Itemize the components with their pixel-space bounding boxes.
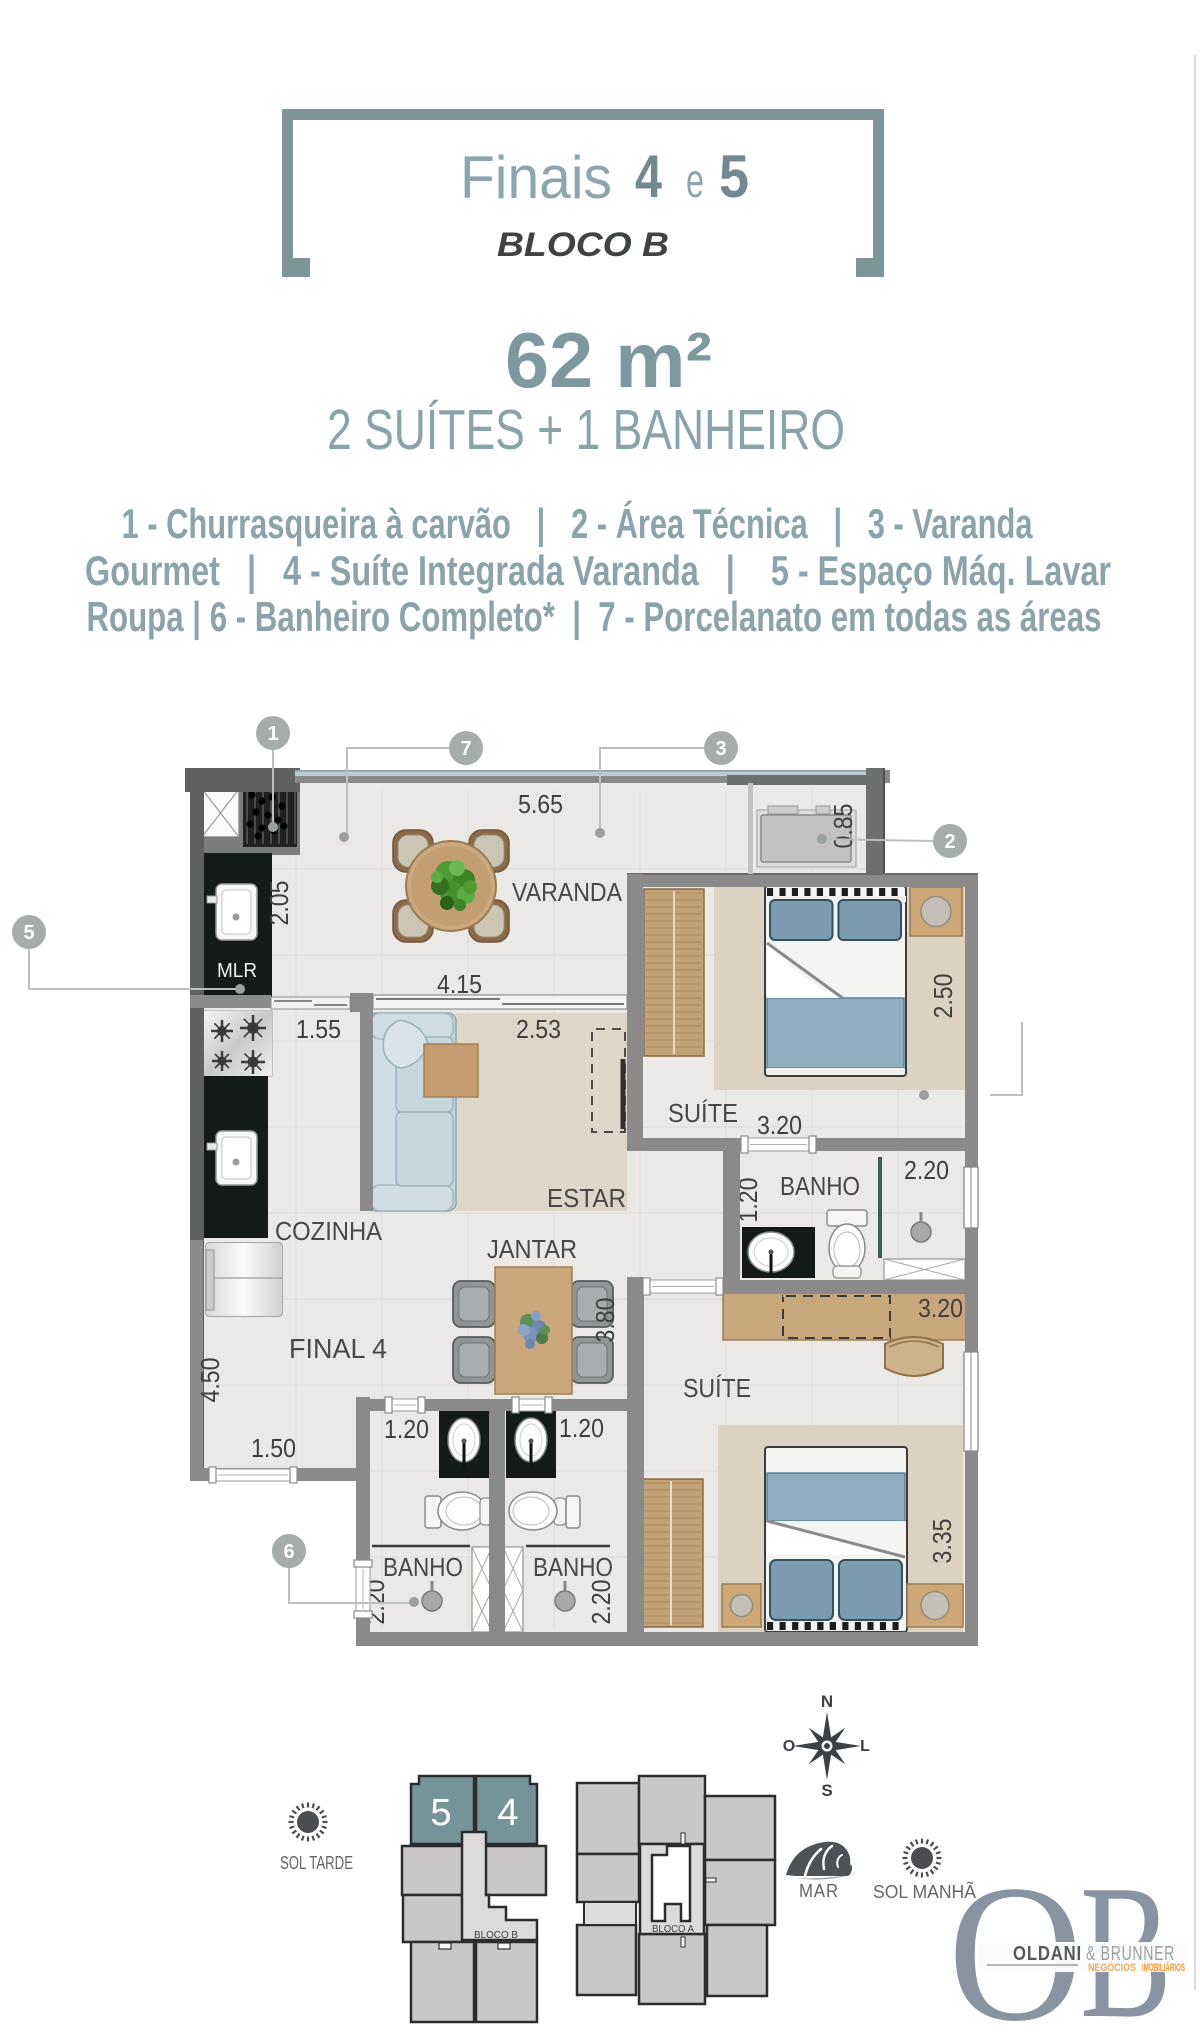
svg-text:FINAL 4: FINAL 4 <box>289 1333 387 1364</box>
svg-text:SUÍTE: SUÍTE <box>683 1373 751 1403</box>
svg-text:BLOCO A: BLOCO A <box>652 1924 694 1935</box>
svg-text:0.85: 0.85 <box>828 804 858 849</box>
svg-text:2: 2 <box>944 831 955 853</box>
svg-text:BANHO: BANHO <box>383 1552 463 1582</box>
svg-text:O: O <box>948 1845 1083 2029</box>
svg-text:4.50: 4.50 <box>195 1358 225 1403</box>
svg-text:2.20: 2.20 <box>904 1155 949 1185</box>
svg-text:SOL TARDE: SOL TARDE <box>280 1853 353 1873</box>
svg-text:N: N <box>821 1692 833 1711</box>
svg-text:2.50: 2.50 <box>928 974 958 1019</box>
svg-text:3: 3 <box>715 738 726 760</box>
svg-text:7: 7 <box>460 738 471 760</box>
svg-text:JANTAR: JANTAR <box>487 1234 577 1264</box>
svg-text:O: O <box>783 1738 795 1755</box>
svg-text:62 m²: 62 m² <box>505 316 712 404</box>
svg-text:BLOCO B: BLOCO B <box>497 226 669 264</box>
svg-text:6: 6 <box>283 1541 294 1563</box>
svg-text:4: 4 <box>497 1792 518 1834</box>
svg-text:1 - Churrasqueira à carvão |: 1 - Churrasqueira à carvão | 2 - Área Té… <box>122 500 1033 548</box>
svg-text:BANHO: BANHO <box>780 1171 860 1201</box>
svg-text:MAR: MAR <box>799 1881 839 1901</box>
svg-text:2 SUÍTES + 1 BANHEIRO: 2 SUÍTES + 1 BANHEIRO <box>327 398 845 462</box>
svg-text:2.20: 2.20 <box>586 1580 616 1625</box>
svg-text:1.50: 1.50 <box>251 1433 296 1463</box>
svg-text:4: 4 <box>635 143 663 210</box>
svg-text:BLOCO B: BLOCO B <box>474 1930 518 1941</box>
svg-text:SUÍTE: SUÍTE <box>668 1098 738 1128</box>
svg-text:Finais: Finais <box>460 144 612 211</box>
svg-text:5: 5 <box>719 143 749 210</box>
svg-text:ESTAR: ESTAR <box>547 1183 626 1213</box>
svg-text:3.35: 3.35 <box>927 1519 957 1564</box>
svg-text:IMOBILIÁRIOS: IMOBILIÁRIOS <box>1142 1961 1185 1974</box>
svg-text:Gourmet | 4 - Suíte Integr: Gourmet | 4 - Suíte Integrada Varanda | … <box>85 547 1111 595</box>
svg-text:L: L <box>860 1738 870 1755</box>
svg-text:VARANDA: VARANDA <box>512 877 623 907</box>
svg-text:1.55: 1.55 <box>296 1014 341 1044</box>
svg-text:S: S <box>821 1781 832 1800</box>
svg-text:OLDANI: OLDANI <box>1013 1943 1082 1965</box>
svg-text:3.80: 3.80 <box>590 1298 620 1343</box>
svg-text:2.53: 2.53 <box>516 1014 561 1044</box>
svg-text:Roupa | 6 - Banheiro Completo*: Roupa | 6 - Banheiro Completo* | 7 - Por… <box>87 593 1102 641</box>
svg-text:e: e <box>686 155 704 208</box>
svg-text:3.20: 3.20 <box>918 1293 963 1323</box>
svg-text:MLR: MLR <box>217 960 257 982</box>
svg-text:3.20: 3.20 <box>757 1110 802 1140</box>
svg-text:COZINHA: COZINHA <box>275 1216 383 1246</box>
svg-text:5: 5 <box>430 1792 451 1834</box>
svg-text:BANHO: BANHO <box>533 1552 613 1582</box>
svg-text:1.20: 1.20 <box>559 1413 604 1443</box>
svg-text:NEGÓCIOS: NEGÓCIOS <box>1088 1961 1136 1974</box>
svg-text:4.15: 4.15 <box>437 969 482 999</box>
svg-text:B: B <box>1080 1845 1172 2029</box>
svg-text:5: 5 <box>23 922 34 944</box>
svg-text:1.20: 1.20 <box>384 1414 429 1444</box>
svg-text:5.65: 5.65 <box>518 789 563 819</box>
svg-text:2.05: 2.05 <box>264 881 294 926</box>
svg-text:1: 1 <box>267 723 278 745</box>
